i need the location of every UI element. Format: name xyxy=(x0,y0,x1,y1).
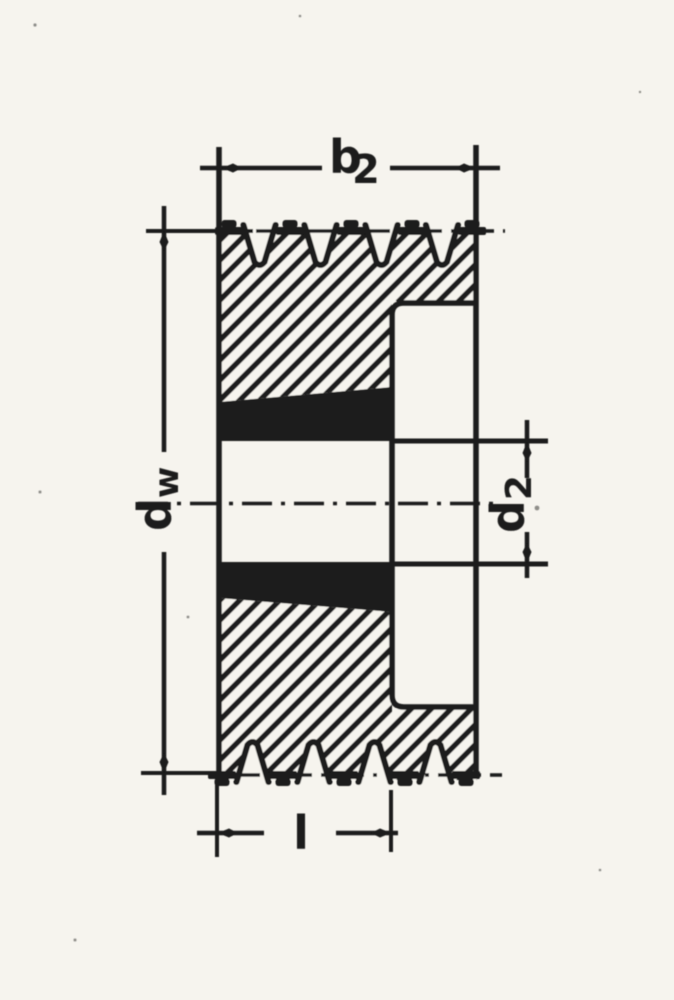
tooth-tip xyxy=(459,778,474,786)
tooth-tip xyxy=(283,220,298,228)
pulley-technical-drawing: b2 dw d2 xyxy=(0,0,674,1000)
tooth-tip xyxy=(276,778,291,786)
tooth-tip xyxy=(222,220,237,228)
tooth-tip xyxy=(344,220,359,228)
tooth-tip xyxy=(398,778,413,786)
tooth-tip xyxy=(337,778,352,786)
hatch-top-left xyxy=(219,227,392,402)
label-l: l xyxy=(293,806,309,860)
tooth-tip xyxy=(405,220,420,228)
drawing-canvas: b2 dw d2 xyxy=(0,0,674,1000)
